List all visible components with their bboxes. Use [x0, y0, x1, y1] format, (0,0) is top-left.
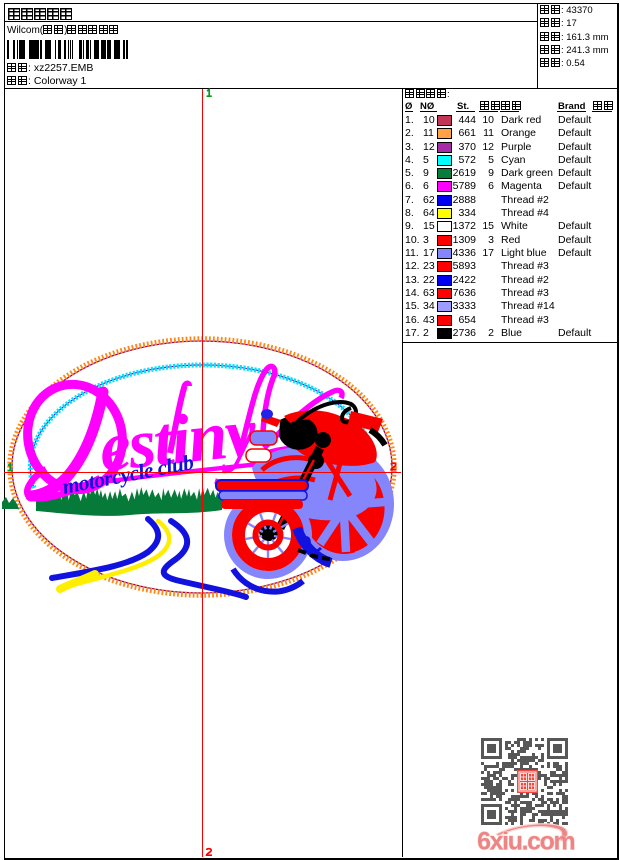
svg-text:6xiu.com: 6xiu.com [477, 827, 574, 855]
